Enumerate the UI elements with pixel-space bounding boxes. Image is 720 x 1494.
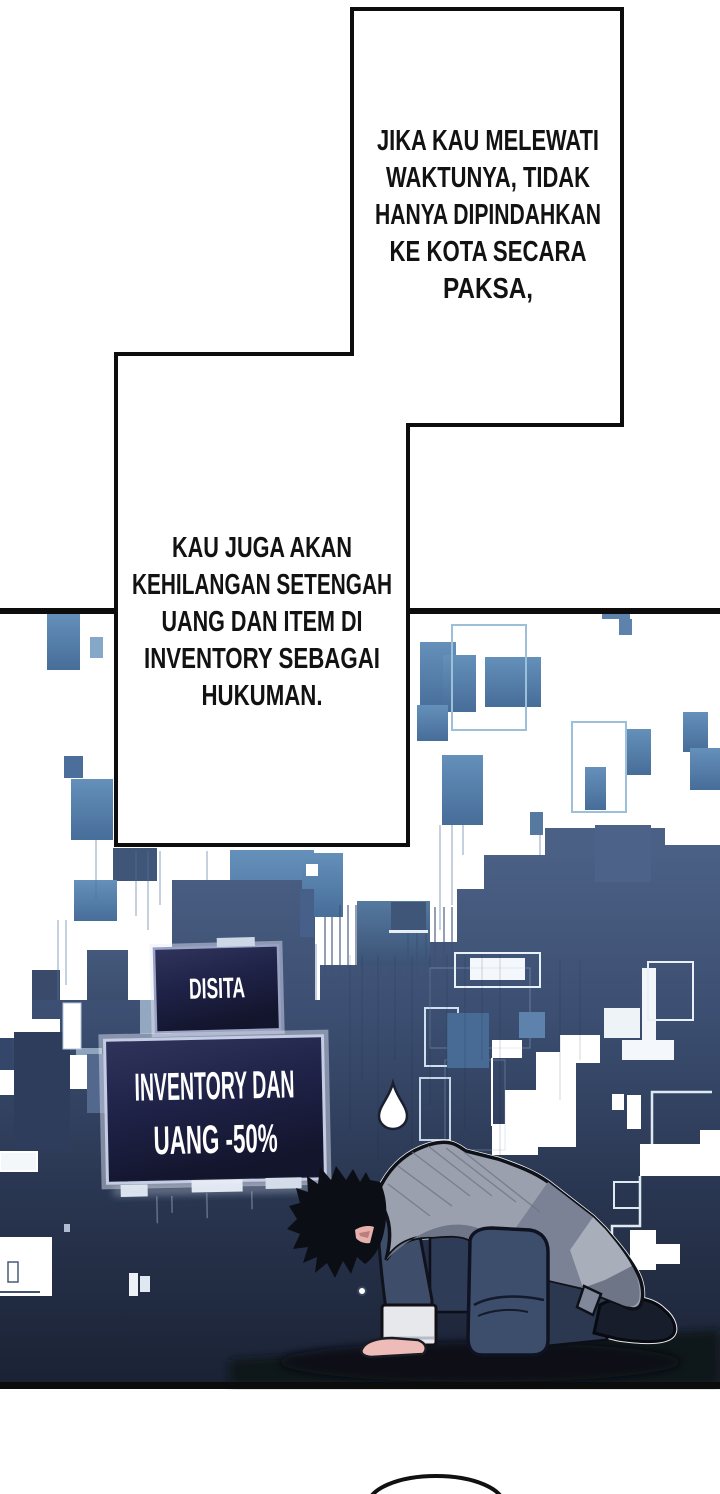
svg-text:HUKUMAN.: HUKUMAN. xyxy=(202,680,323,712)
svg-text:UANG -50%: UANG -50% xyxy=(153,1117,278,1164)
svg-text:WAKTUNYA, TIDAK: WAKTUNYA, TIDAK xyxy=(386,162,590,194)
svg-text:DISITA: DISITA xyxy=(189,972,246,1005)
svg-text:PAKSA,: PAKSA, xyxy=(443,273,533,305)
svg-text:INVENTORY SEBAGAI: INVENTORY SEBAGAI xyxy=(144,643,380,675)
svg-text:KEHILANGAN SETENGAH: KEHILANGAN SETENGAH xyxy=(132,569,392,601)
svg-text:HANYA DIPINDAHKAN: HANYA DIPINDAHKAN xyxy=(375,199,601,231)
svg-text:INVENTORY DAN: INVENTORY DAN xyxy=(134,1063,295,1109)
svg-text:JIKA KAU MELEWATI: JIKA KAU MELEWATI xyxy=(377,125,599,157)
svg-text:UANG DAN ITEM DI: UANG DAN ITEM DI xyxy=(162,606,363,638)
svg-text:KAU JUGA AKAN: KAU JUGA AKAN xyxy=(172,532,352,564)
svg-text:KE KOTA SECARA: KE KOTA SECARA xyxy=(390,236,587,268)
